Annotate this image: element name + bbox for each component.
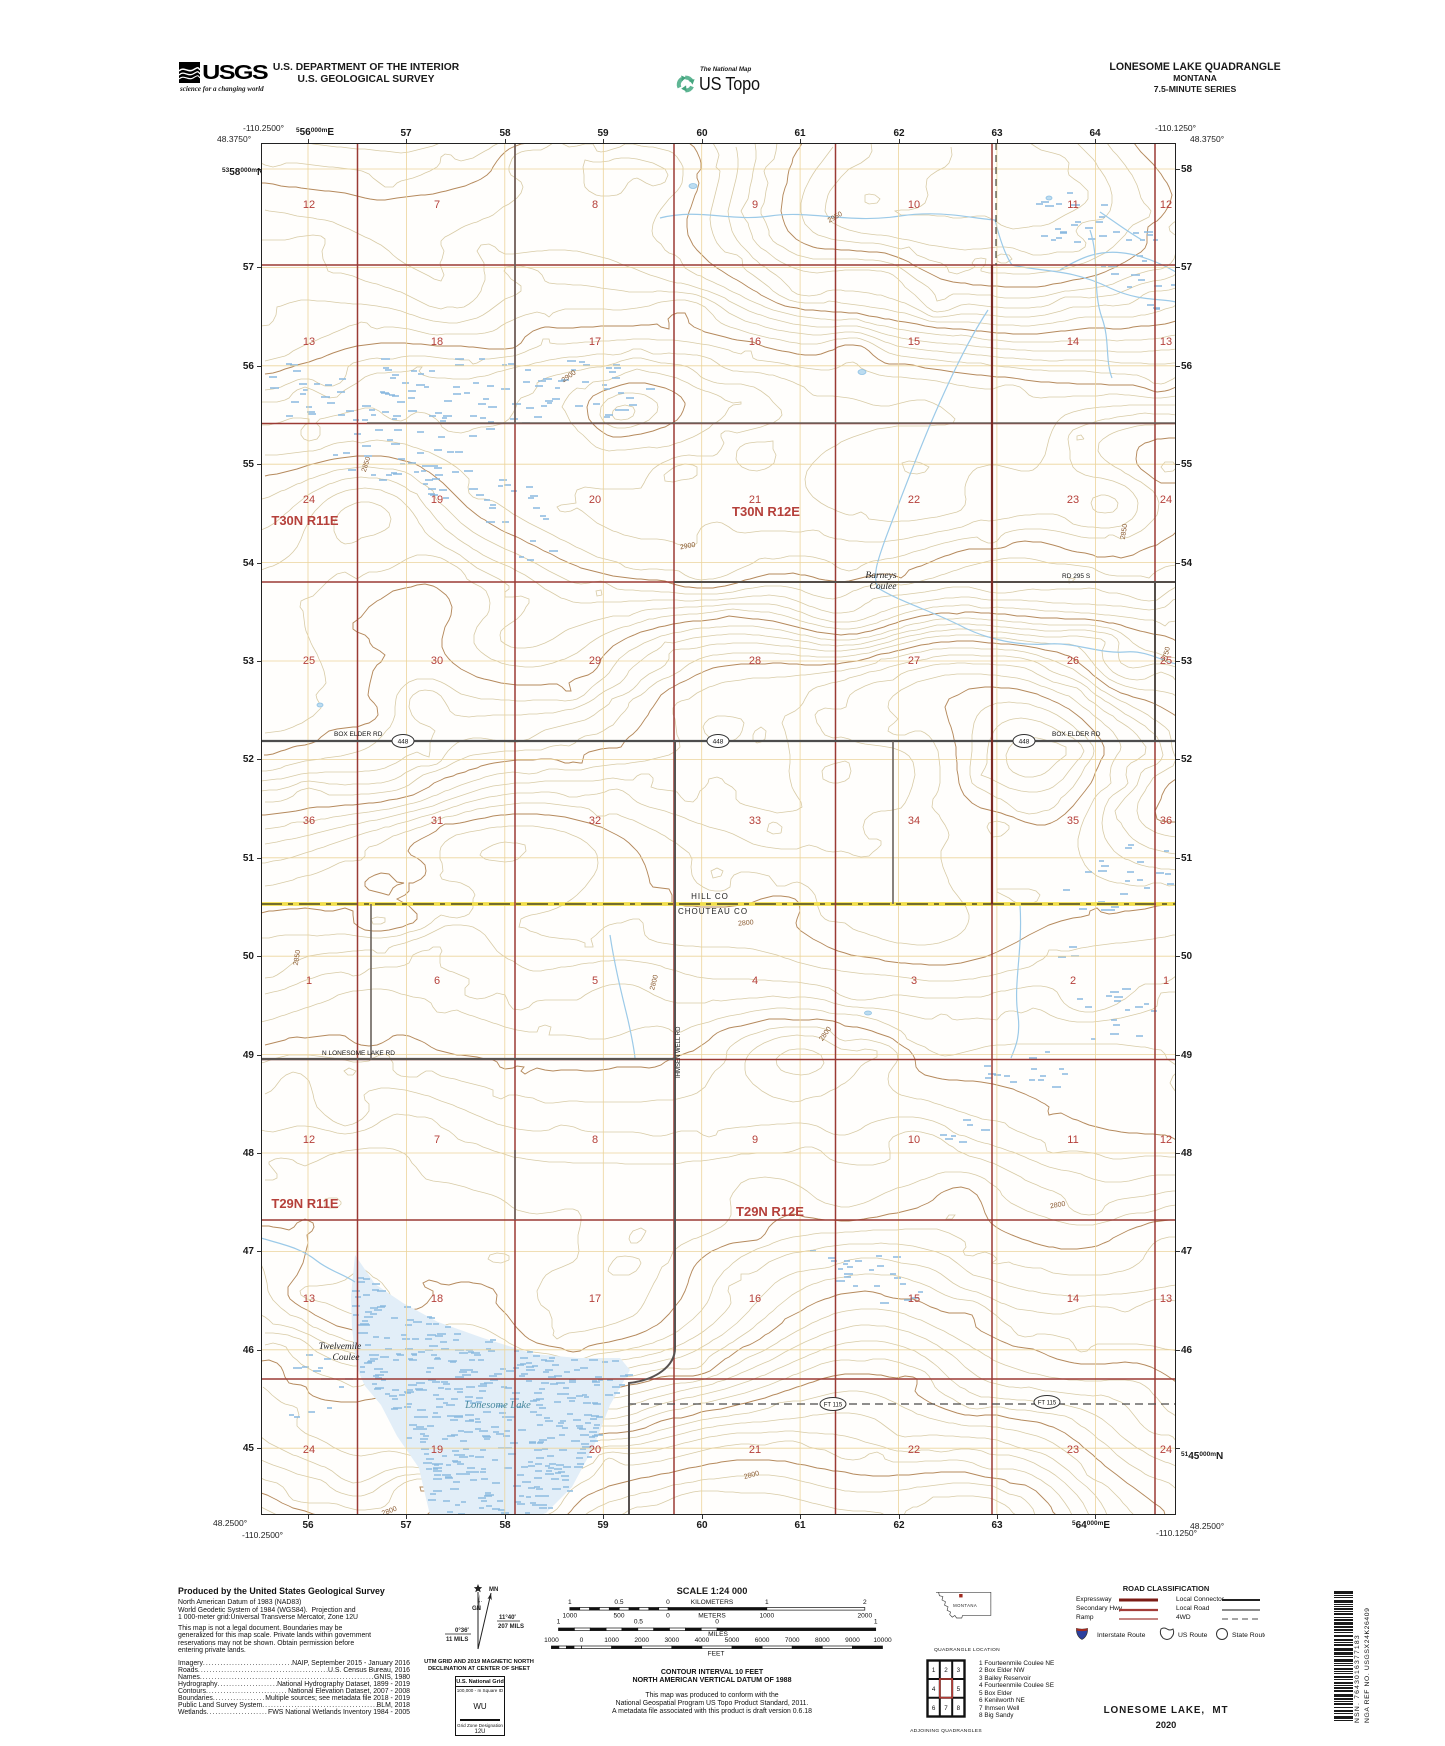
svg-text:1000: 1000 xyxy=(562,1613,577,1620)
svg-text:5: 5 xyxy=(592,975,598,987)
svg-text:1: 1 xyxy=(1163,975,1169,987)
svg-text:HILL CO: HILL CO xyxy=(691,892,729,901)
svg-text:FEET: FEET xyxy=(708,1651,725,1658)
svg-text:BOX ELDER RD: BOX ELDER RD xyxy=(334,731,383,738)
svg-text:448: 448 xyxy=(1019,739,1030,746)
svg-text:IHMSEN WELL RD: IHMSEN WELL RD xyxy=(676,1026,682,1078)
svg-text:US Route: US Route xyxy=(1178,1632,1208,1639)
svg-text:0: 0 xyxy=(666,1613,670,1620)
svg-text:RD 295 S: RD 295 S xyxy=(1062,573,1091,580)
svg-text:BOX ELDER RD: BOX ELDER RD xyxy=(1052,731,1101,738)
svg-text:State Route: State Route xyxy=(1232,1632,1265,1639)
svg-text:1: 1 xyxy=(932,1667,936,1674)
svg-text:1000: 1000 xyxy=(544,1637,559,1644)
svg-text:2800: 2800 xyxy=(738,919,754,927)
svg-text:USGS: USGS xyxy=(202,62,268,83)
svg-text:4: 4 xyxy=(752,975,758,987)
svg-text:24: 24 xyxy=(1160,1444,1172,1456)
svg-text:4000: 4000 xyxy=(695,1637,710,1644)
svg-text:34: 34 xyxy=(908,815,920,827)
svg-text:FT 115: FT 115 xyxy=(824,1403,843,1409)
svg-text:12: 12 xyxy=(1160,199,1172,211)
svg-text:24: 24 xyxy=(1160,494,1172,506)
svg-text:24: 24 xyxy=(303,1444,315,1456)
svg-text:17: 17 xyxy=(589,336,601,348)
svg-text:13: 13 xyxy=(1160,336,1172,348)
svg-text:12: 12 xyxy=(303,199,315,211)
svg-text:0.5: 0.5 xyxy=(634,1619,643,1626)
svg-text:11 MILS: 11 MILS xyxy=(446,1637,468,1643)
svg-text:22: 22 xyxy=(908,494,920,506)
svg-text:14: 14 xyxy=(1067,336,1079,348)
svg-text:11: 11 xyxy=(1067,1134,1078,1146)
svg-text:22: 22 xyxy=(908,1444,920,1456)
svg-text:5000: 5000 xyxy=(725,1637,740,1644)
svg-text:207 MILS: 207 MILS xyxy=(498,1624,524,1630)
svg-text:FT 115: FT 115 xyxy=(1038,1401,1057,1407)
svg-text:Coulee: Coulee xyxy=(333,1353,360,1363)
svg-text:12: 12 xyxy=(1160,1134,1172,1146)
svg-text:7: 7 xyxy=(434,1134,440,1146)
svg-text:GN: GN xyxy=(472,1606,481,1612)
svg-text:MONTANA: MONTANA xyxy=(953,1603,977,1608)
svg-text:0: 0 xyxy=(580,1637,584,1644)
svg-text:8: 8 xyxy=(957,1705,961,1712)
svg-text:28: 28 xyxy=(749,655,761,667)
svg-text:24: 24 xyxy=(303,494,315,506)
svg-text:27: 27 xyxy=(908,655,920,667)
svg-text:1000: 1000 xyxy=(759,1613,774,1620)
svg-text:3: 3 xyxy=(911,975,917,987)
svg-text:T30N R12E: T30N R12E xyxy=(732,504,800,519)
svg-text:11°40′: 11°40′ xyxy=(499,1615,516,1621)
svg-text:448: 448 xyxy=(398,739,409,746)
svg-text:N LONESOME LAKE RD: N LONESOME LAKE RD xyxy=(322,1050,395,1057)
svg-text:2: 2 xyxy=(944,1667,948,1674)
svg-text:25: 25 xyxy=(303,655,315,667)
svg-text:20: 20 xyxy=(589,1444,601,1456)
svg-text:21: 21 xyxy=(749,1444,761,1456)
svg-text:448: 448 xyxy=(713,739,724,746)
svg-text:T30N R11E: T30N R11E xyxy=(271,513,339,528)
svg-text:36: 36 xyxy=(303,815,315,827)
svg-text:6: 6 xyxy=(434,975,440,987)
svg-text:18: 18 xyxy=(431,336,443,348)
svg-text:8: 8 xyxy=(592,199,598,211)
svg-text:23: 23 xyxy=(1067,1444,1079,1456)
svg-text:29: 29 xyxy=(589,655,601,667)
svg-text:15: 15 xyxy=(908,336,920,348)
svg-text:CHOUTEAU CO: CHOUTEAU CO xyxy=(678,907,748,916)
svg-text:35: 35 xyxy=(1067,815,1079,827)
svg-text:14: 14 xyxy=(1067,1293,1079,1305)
svg-text:MN: MN xyxy=(489,1587,498,1593)
svg-text:13: 13 xyxy=(303,336,315,348)
svg-text:33: 33 xyxy=(749,815,761,827)
svg-text:26: 26 xyxy=(1067,655,1079,667)
svg-text:7: 7 xyxy=(944,1705,948,1712)
svg-text:10: 10 xyxy=(908,199,920,211)
svg-text:2000: 2000 xyxy=(857,1613,872,1620)
svg-text:1000: 1000 xyxy=(604,1637,619,1644)
svg-text:19: 19 xyxy=(431,1444,443,1456)
svg-text:7000: 7000 xyxy=(785,1637,800,1644)
svg-text:8000: 8000 xyxy=(815,1637,830,1644)
svg-text:1: 1 xyxy=(765,1599,769,1606)
svg-text:T29N R12E: T29N R12E xyxy=(736,1204,804,1219)
svg-text:10000: 10000 xyxy=(873,1637,892,1644)
svg-text:1: 1 xyxy=(557,1619,561,1626)
svg-text:Barneys: Barneys xyxy=(865,571,896,581)
svg-text:2: 2 xyxy=(863,1599,867,1606)
svg-text:Coulee: Coulee xyxy=(870,582,897,592)
svg-text:18: 18 xyxy=(431,1293,443,1305)
svg-text:11: 11 xyxy=(1067,199,1078,211)
svg-text:31: 31 xyxy=(431,815,443,827)
svg-text:7: 7 xyxy=(434,199,440,211)
svg-text:0: 0 xyxy=(666,1599,670,1606)
svg-text:15: 15 xyxy=(908,1293,920,1305)
svg-text:1: 1 xyxy=(568,1599,572,1606)
svg-text:3: 3 xyxy=(957,1667,961,1674)
svg-text:4: 4 xyxy=(932,1686,936,1693)
svg-text:36: 36 xyxy=(1160,815,1172,827)
svg-text:500: 500 xyxy=(613,1613,624,1620)
svg-text:3000: 3000 xyxy=(664,1637,679,1644)
svg-text:32: 32 xyxy=(589,815,601,827)
svg-text:Twelvemile: Twelvemile xyxy=(319,1342,362,1352)
svg-text:16: 16 xyxy=(749,336,761,348)
svg-text:8: 8 xyxy=(592,1134,598,1146)
svg-text:Interstate Route: Interstate Route xyxy=(1097,1632,1146,1639)
svg-text:T29N R11E: T29N R11E xyxy=(271,1196,339,1211)
svg-text:2: 2 xyxy=(1070,975,1076,987)
svg-text:6: 6 xyxy=(932,1705,936,1712)
svg-text:23: 23 xyxy=(1067,494,1079,506)
svg-text:9: 9 xyxy=(752,1134,758,1146)
svg-text:12: 12 xyxy=(303,1134,315,1146)
svg-text:5: 5 xyxy=(957,1686,961,1693)
svg-text:9: 9 xyxy=(752,199,758,211)
svg-text:20: 20 xyxy=(589,494,601,506)
svg-text:6000: 6000 xyxy=(755,1637,770,1644)
svg-text:0.5: 0.5 xyxy=(614,1599,623,1606)
svg-text:16: 16 xyxy=(749,1293,761,1305)
svg-text:10: 10 xyxy=(908,1134,920,1146)
svg-text:Lonesome Lake: Lonesome Lake xyxy=(464,1400,531,1411)
svg-text:0: 0 xyxy=(715,1619,719,1626)
svg-text:13: 13 xyxy=(1160,1293,1172,1305)
svg-text:1: 1 xyxy=(874,1619,878,1626)
svg-text:9000: 9000 xyxy=(845,1637,860,1644)
svg-text:2000: 2000 xyxy=(634,1637,649,1644)
svg-text:30: 30 xyxy=(431,655,443,667)
svg-text:KILOMETERS: KILOMETERS xyxy=(691,1599,734,1606)
svg-text:13: 13 xyxy=(303,1293,315,1305)
svg-text:METERS: METERS xyxy=(698,1613,726,1620)
svg-text:0°36′: 0°36′ xyxy=(455,1628,469,1634)
svg-text:17: 17 xyxy=(589,1293,601,1305)
svg-text:19: 19 xyxy=(431,494,443,506)
svg-text:1: 1 xyxy=(306,975,312,987)
